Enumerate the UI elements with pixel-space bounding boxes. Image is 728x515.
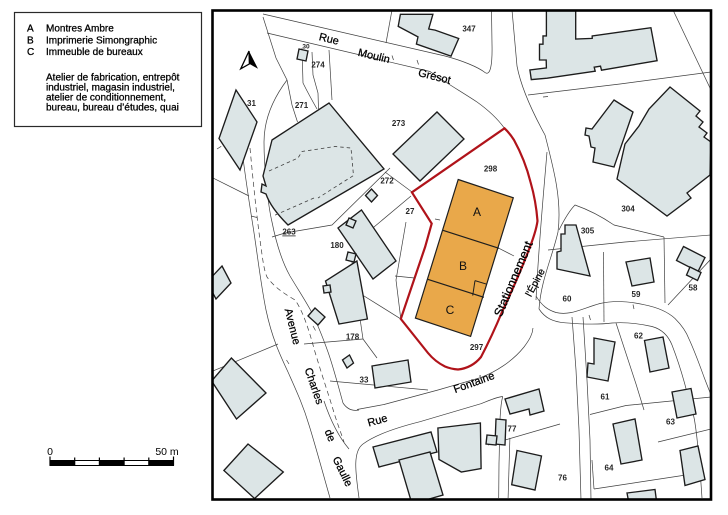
- svg-text:272: 272: [380, 177, 394, 186]
- svg-text:347: 347: [462, 25, 476, 34]
- svg-text:B: B: [27, 35, 34, 46]
- svg-text:0: 0: [47, 446, 53, 458]
- svg-text:304: 304: [621, 205, 635, 214]
- svg-text:77: 77: [508, 425, 517, 434]
- svg-text:Imprimerie Simongraphic: Imprimerie Simongraphic: [46, 35, 157, 46]
- svg-text:274: 274: [311, 61, 325, 70]
- svg-text:A: A: [27, 24, 34, 35]
- svg-text:263: 263: [282, 228, 296, 237]
- svg-text:33: 33: [360, 376, 369, 385]
- svg-text:50 m: 50 m: [155, 446, 179, 458]
- svg-text:60: 60: [563, 295, 572, 304]
- svg-text:27: 27: [406, 207, 415, 216]
- svg-text:64: 64: [605, 464, 614, 473]
- svg-text:297: 297: [470, 343, 484, 352]
- svg-text:63: 63: [666, 418, 675, 427]
- svg-text:Immeuble de bureaux: Immeuble de bureaux: [46, 47, 143, 58]
- svg-text:B: B: [459, 259, 467, 273]
- svg-text:Montres Ambre: Montres Ambre: [46, 24, 114, 35]
- svg-text:62: 62: [634, 332, 643, 341]
- svg-text:bureau, bureau d’études, quai: bureau, bureau d’études, quai: [46, 102, 179, 113]
- svg-text:180: 180: [330, 241, 344, 250]
- svg-text:30: 30: [302, 44, 310, 51]
- svg-text:305: 305: [581, 227, 595, 236]
- svg-text:59: 59: [632, 290, 641, 299]
- svg-text:A: A: [473, 205, 481, 219]
- svg-text:61: 61: [601, 393, 610, 402]
- svg-text:58: 58: [689, 284, 698, 293]
- svg-text:298: 298: [484, 165, 498, 174]
- svg-text:76: 76: [558, 474, 567, 483]
- svg-text:31: 31: [247, 99, 256, 108]
- svg-text:271: 271: [295, 101, 309, 110]
- svg-text:C: C: [27, 47, 34, 58]
- svg-text:273: 273: [392, 119, 406, 128]
- svg-text:C: C: [446, 303, 455, 317]
- svg-text:178: 178: [346, 333, 360, 342]
